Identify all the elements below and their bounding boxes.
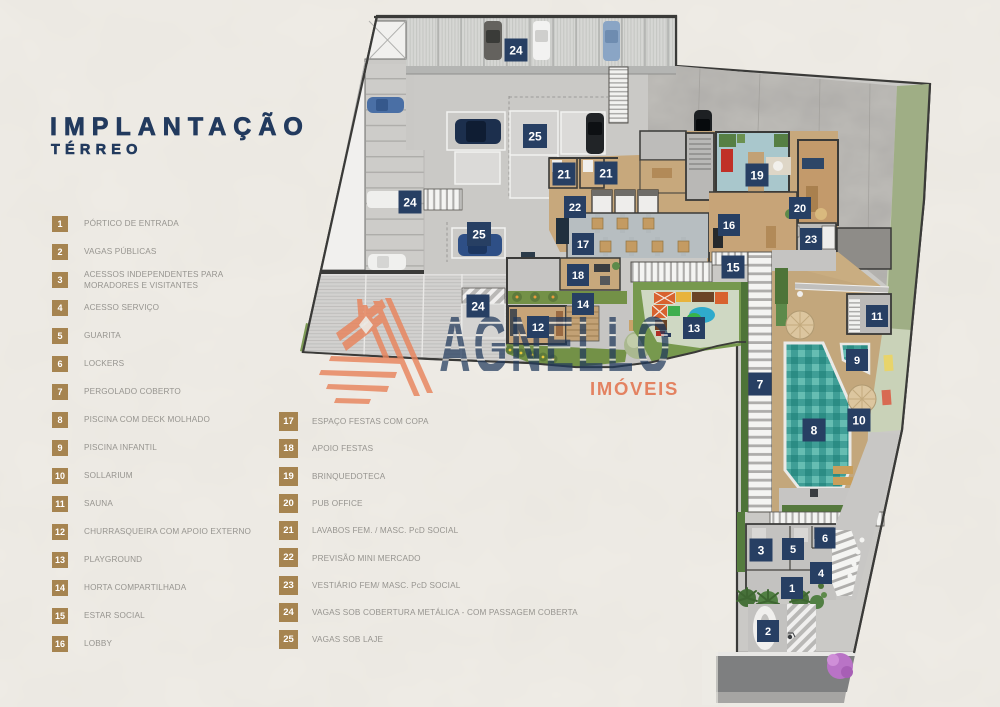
svg-text:21: 21: [557, 167, 571, 181]
svg-text:4: 4: [818, 568, 825, 580]
svg-text:14: 14: [577, 299, 590, 311]
svg-text:9: 9: [854, 355, 860, 367]
svg-text:15: 15: [726, 260, 740, 274]
svg-text:16: 16: [723, 220, 735, 232]
svg-text:24: 24: [509, 43, 523, 57]
svg-text:17: 17: [577, 239, 589, 251]
svg-text:20: 20: [794, 203, 806, 215]
svg-text:21: 21: [599, 166, 613, 180]
svg-text:23: 23: [805, 234, 817, 246]
svg-text:19: 19: [750, 168, 764, 182]
svg-text:3: 3: [758, 543, 765, 557]
svg-text:2: 2: [765, 626, 771, 638]
svg-text:13: 13: [688, 323, 700, 335]
svg-text:7: 7: [757, 377, 764, 391]
svg-text:25: 25: [528, 129, 542, 143]
svg-text:18: 18: [572, 270, 584, 282]
svg-text:12: 12: [532, 322, 544, 334]
svg-text:24: 24: [471, 299, 485, 313]
svg-text:24: 24: [403, 195, 417, 209]
svg-text:22: 22: [569, 202, 581, 214]
svg-text:1: 1: [789, 583, 795, 595]
svg-text:10: 10: [852, 413, 866, 427]
svg-text:25: 25: [472, 227, 486, 241]
svg-text:5: 5: [790, 544, 796, 556]
svg-text:6: 6: [822, 533, 828, 545]
svg-text:IMÓVEIS: IMÓVEIS: [590, 378, 679, 399]
svg-text:11: 11: [871, 311, 883, 323]
svg-text:8: 8: [811, 423, 818, 437]
